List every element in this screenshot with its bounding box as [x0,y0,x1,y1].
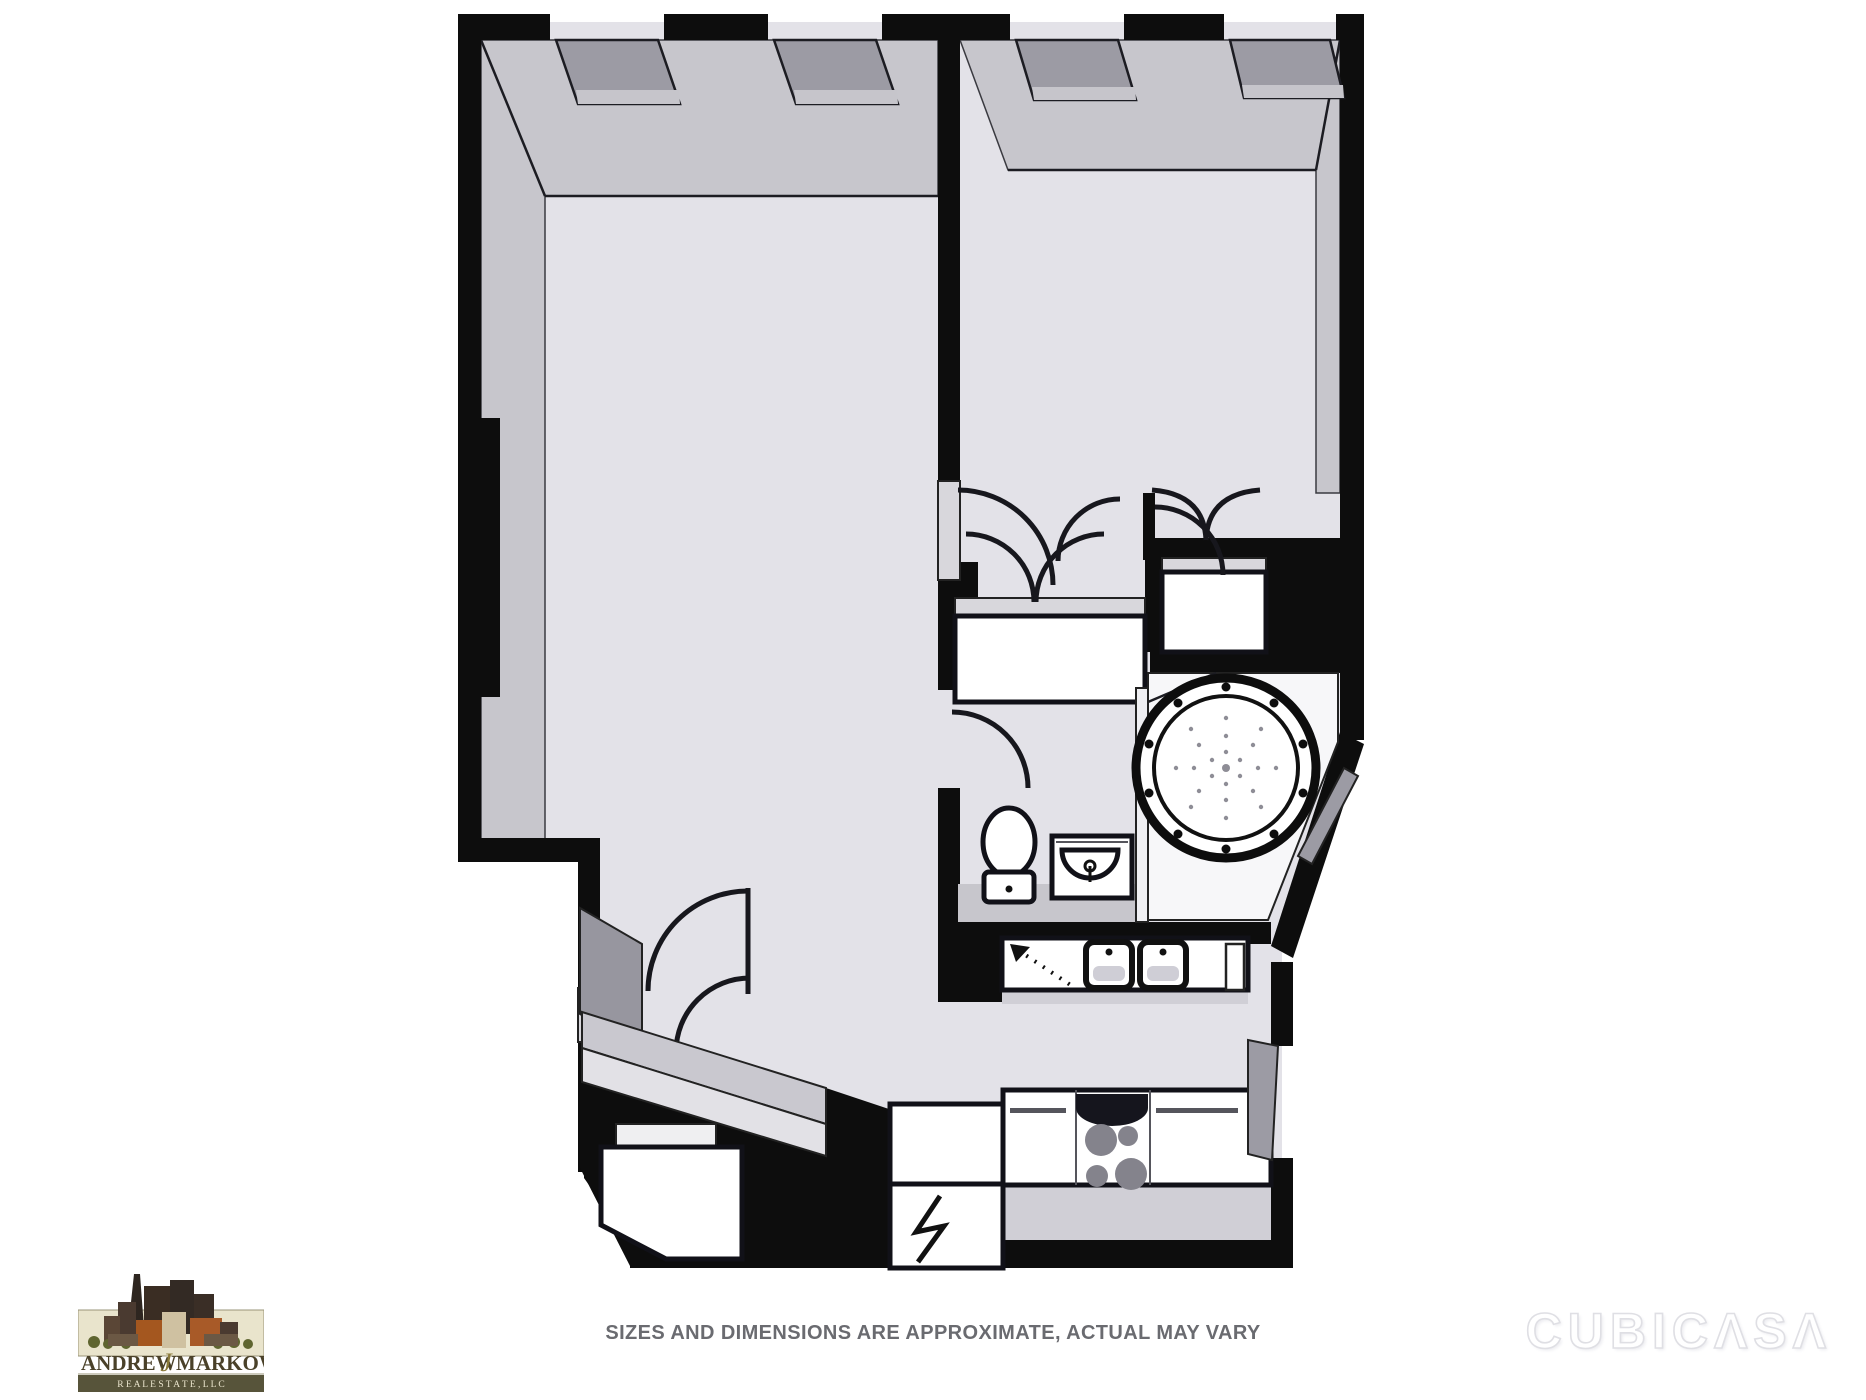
window-icon [1248,1040,1278,1160]
window-icon [556,40,680,104]
dishwasher-icon [1006,941,1080,987]
refrigerator-icon [890,1104,1003,1268]
toilet-icon [983,808,1035,902]
cubicasa-watermark: CUBICΛSΛ [1526,1302,1832,1360]
logo-name-right: Markowitz [176,1351,264,1375]
logo-subtitle: R E A L E S T A T E , L L C [117,1380,225,1390]
window-icon [1016,40,1136,100]
floorplan-canvas [0,0,1866,1400]
sink-icon [1052,836,1132,898]
window-icon [1230,40,1344,98]
jetted-tub-icon [1136,678,1316,858]
door-jamb [938,481,960,580]
kitchen-sink-icon [1140,942,1186,988]
bedroom-closet [1162,572,1266,652]
counter-front [1003,1185,1271,1240]
agency-logo: Andrew J Markowitz R E A L E S T A T E ,… [78,1272,264,1392]
window-icon [774,40,898,104]
kitchen-sink-icon [1086,942,1132,988]
logo-name-script: J [160,1348,173,1377]
closet-track [955,598,1145,616]
floorplan-drawing [0,0,1866,1400]
hall-closet [955,616,1145,702]
